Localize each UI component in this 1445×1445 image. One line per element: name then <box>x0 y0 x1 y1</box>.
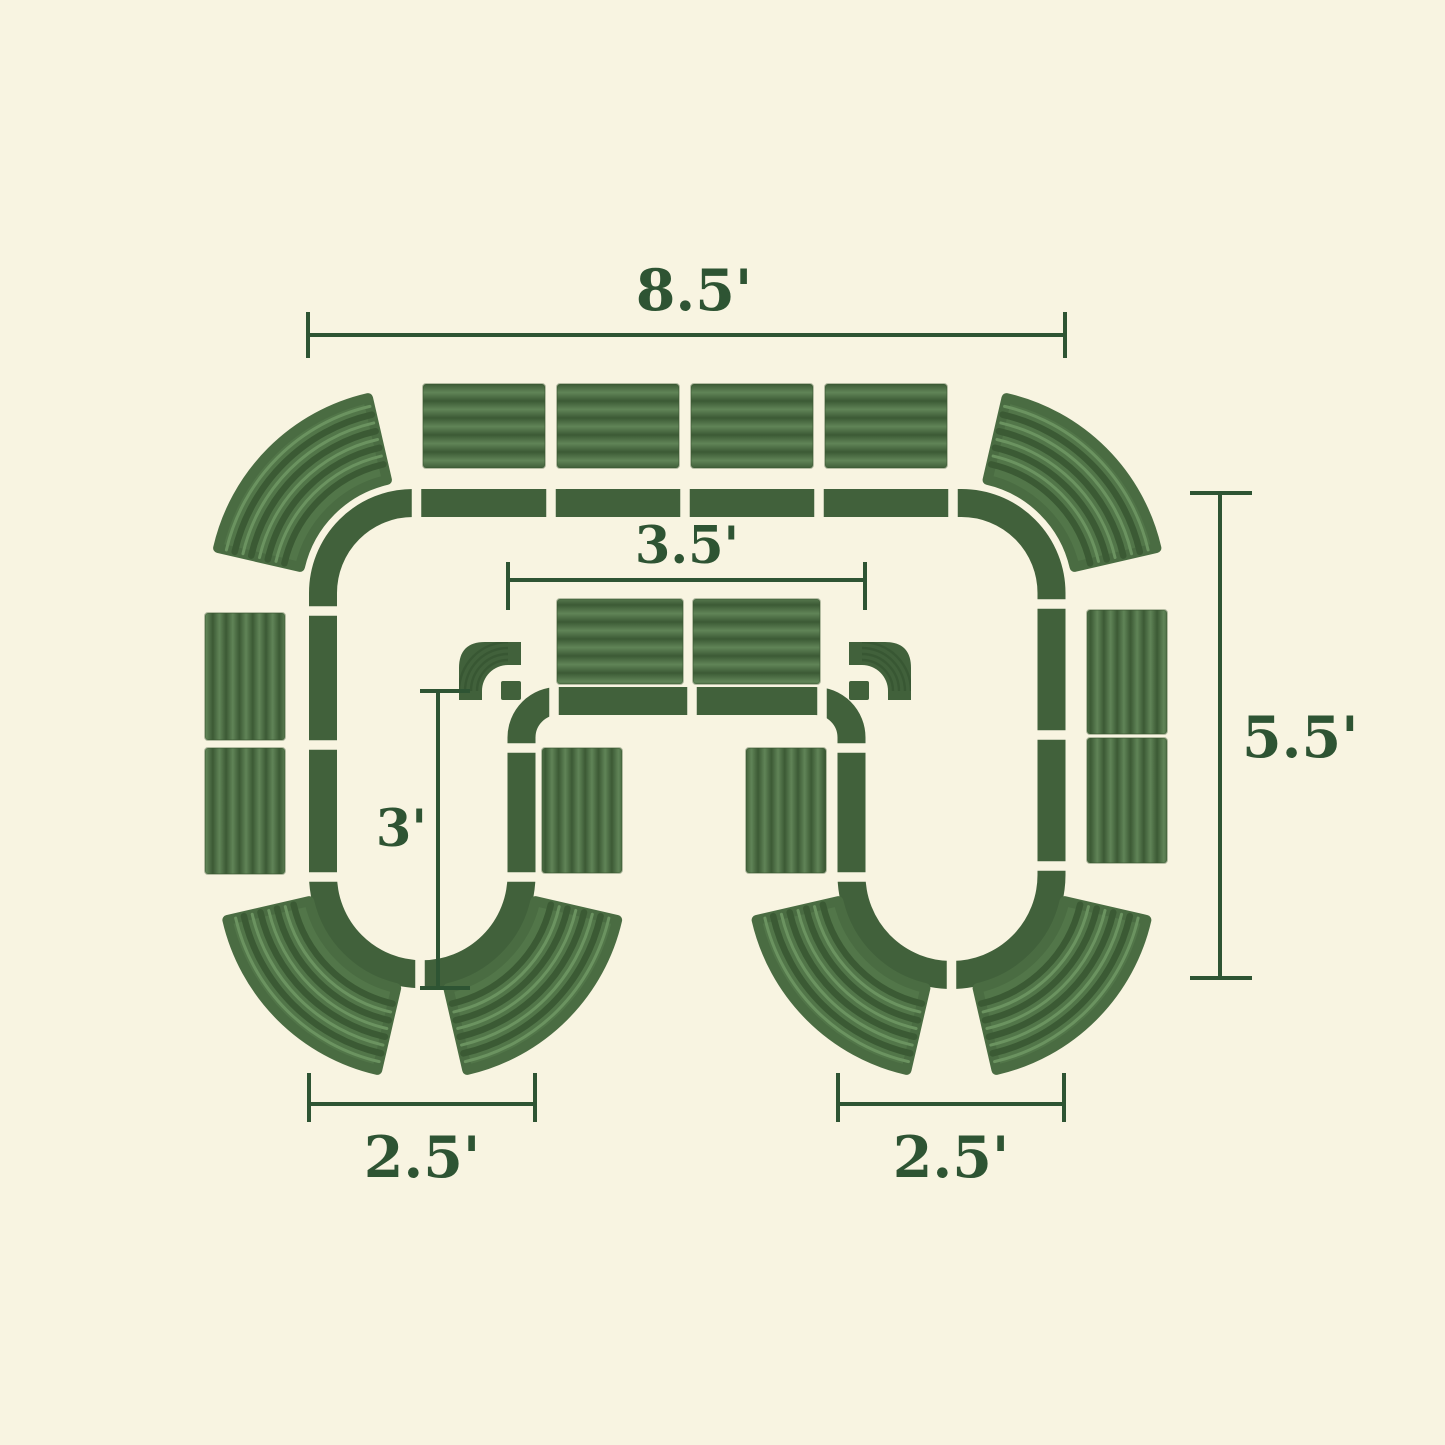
dimension-label: 2.5' <box>893 1124 1010 1191</box>
inner-panel-left <box>542 748 622 873</box>
left-panel-lower <box>205 748 285 874</box>
center-panel-right <box>693 599 820 684</box>
dimension-inner-depth: 3' <box>376 691 470 988</box>
dimension-label: 3' <box>376 799 427 859</box>
inner-panel-right <box>746 748 826 873</box>
right-panel-upper <box>1087 610 1167 734</box>
fan-panel-top-right <box>956 377 1178 599</box>
dimension-overall-width: 8.5' <box>308 257 1065 358</box>
center-panel-left <box>557 599 683 684</box>
elbow-right-foot <box>849 681 869 700</box>
top-panel-1 <box>423 384 545 468</box>
corner-elbow-right <box>849 642 911 700</box>
top-panel-2 <box>557 384 679 468</box>
left-panel-upper <box>205 613 285 740</box>
dimension-overall-height: 5.5' <box>1190 493 1359 978</box>
elbow-left-foot <box>501 681 521 700</box>
dimension-label: 8.5' <box>636 257 753 324</box>
curved-corner-panels <box>197 377 1178 1092</box>
top-panel-3 <box>691 384 813 468</box>
right-panel-lower <box>1087 738 1167 863</box>
top-panel-4 <box>825 384 947 468</box>
garden-bed-layout-diagram: 8.5' 3.5' 5.5' 3' 2.5' 2.5' <box>0 0 1445 1445</box>
fan-panel-top-left <box>197 377 419 599</box>
dimension-left-opening: 2.5' <box>309 1073 535 1191</box>
dimension-label: 2.5' <box>364 1124 481 1191</box>
dimension-label: 5.5' <box>1242 704 1359 771</box>
dimension-inner-span: 3.5' <box>508 516 865 610</box>
dimension-label: 3.5' <box>635 516 739 576</box>
dimension-right-opening: 2.5' <box>838 1073 1064 1191</box>
